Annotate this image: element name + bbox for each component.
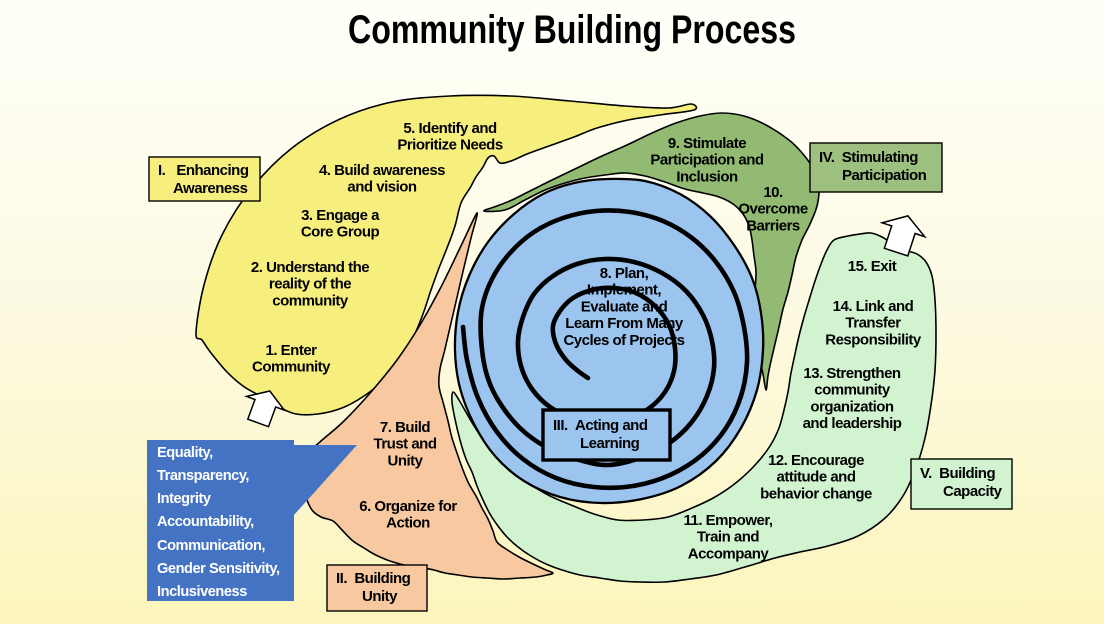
svg-text:Unity: Unity (362, 588, 398, 605)
svg-text:Learning: Learning (580, 435, 640, 452)
svg-text:11. Empower,: 11. Empower, (683, 512, 772, 529)
svg-text:V. Building: V. Building (920, 465, 995, 482)
svg-text:Participation and: Participation and (650, 152, 764, 169)
svg-text:behavior change: behavior change (760, 485, 872, 502)
svg-text:Communication,: Communication, (157, 538, 265, 554)
svg-text:Integrity: Integrity (157, 491, 212, 507)
svg-text:Barriers: Barriers (746, 217, 800, 234)
svg-text:Community Building Process: Community Building Process (348, 8, 796, 52)
svg-text:Transfer: Transfer (845, 315, 901, 332)
svg-text:Inclusion: Inclusion (676, 168, 738, 185)
svg-text:Cycles of Projects: Cycles of Projects (563, 332, 684, 349)
svg-text:12. Encourage: 12. Encourage (768, 452, 864, 469)
svg-text:Train and: Train and (697, 529, 760, 546)
svg-text:I. Enhancing: I. Enhancing (158, 162, 249, 179)
svg-text:2. Understand the: 2. Understand the (251, 259, 369, 276)
svg-text:8. Plan,: 8. Plan, (600, 265, 649, 282)
svg-text:Responsibility: Responsibility (825, 331, 922, 348)
svg-text:organization: organization (810, 398, 894, 415)
svg-text:Accountability,: Accountability, (157, 514, 254, 530)
svg-text:Unity: Unity (388, 452, 424, 469)
svg-text:10.: 10. (763, 184, 783, 201)
svg-text:13. Strengthen: 13. Strengthen (803, 365, 901, 382)
svg-text:7. Build: 7. Build (380, 419, 431, 436)
svg-text:and vision: and vision (347, 179, 417, 196)
svg-text:III. Acting and: III. Acting and (553, 417, 648, 434)
svg-text:Participation: Participation (842, 167, 927, 184)
svg-text:Inclusiveness: Inclusiveness (157, 584, 247, 600)
svg-text:attitude and: attitude and (777, 469, 856, 486)
svg-text:Awareness: Awareness (173, 180, 248, 197)
svg-text:Implement,: Implement, (587, 282, 662, 299)
svg-text:Learn From Many: Learn From Many (565, 315, 684, 332)
svg-text:15. Exit: 15. Exit (848, 258, 897, 275)
svg-text:community: community (272, 292, 349, 309)
svg-text:Community: Community (252, 359, 331, 376)
svg-text:Trust and: Trust and (373, 436, 436, 453)
svg-text:Overcome: Overcome (738, 201, 808, 218)
svg-text:Gender Sensitivity,: Gender Sensitivity, (157, 561, 280, 577)
svg-text:Core Group: Core Group (301, 224, 380, 241)
svg-text:Prioritize Needs: Prioritize Needs (397, 137, 503, 154)
svg-text:II. Building: II. Building (336, 570, 411, 587)
svg-text:community: community (814, 382, 891, 399)
svg-text:and leadership: and leadership (803, 415, 902, 432)
svg-text:6. Organize for: 6. Organize for (359, 498, 457, 515)
svg-text:Evaluate and: Evaluate and (581, 298, 668, 315)
svg-text:Accompany: Accompany (688, 545, 770, 562)
svg-text:9. Stimulate: 9. Stimulate (668, 135, 746, 152)
svg-text:Capacity: Capacity (943, 483, 1003, 500)
svg-text:reality of the: reality of the (269, 276, 351, 293)
svg-text:5. Identify and: 5. Identify and (403, 120, 497, 137)
svg-text:3. Engage a: 3. Engage a (301, 207, 380, 224)
svg-text:Action: Action (386, 515, 430, 532)
svg-text:14. Link and: 14. Link and (833, 298, 914, 315)
svg-text:IV. Stimulating: IV. Stimulating (819, 149, 918, 166)
svg-text:1. Enter: 1. Enter (265, 342, 317, 359)
svg-text:Equality,: Equality, (157, 445, 213, 461)
svg-text:Transparency,: Transparency, (157, 468, 249, 484)
svg-text:4. Build awareness: 4. Build awareness (319, 162, 445, 179)
